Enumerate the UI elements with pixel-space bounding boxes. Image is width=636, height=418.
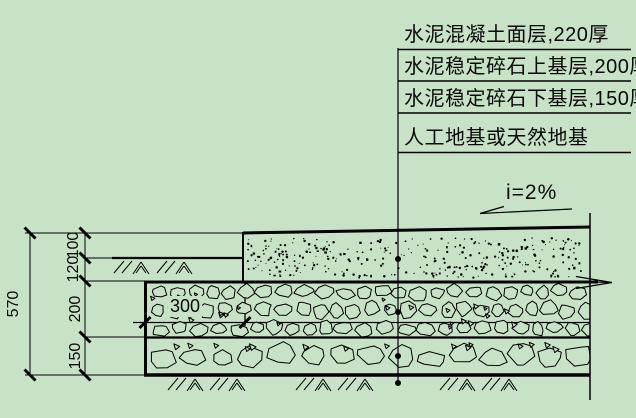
callout-upper-base-layer: 水泥稳定碎石上基层,200厚 xyxy=(404,55,636,79)
dimension-150: 150 xyxy=(68,332,84,380)
crushed-stone-pattern xyxy=(151,283,600,368)
callout-surface-layer: 水泥混凝土面层,220厚 xyxy=(404,23,609,47)
dimension-200: 200 xyxy=(68,285,84,333)
pavement-cross-section-drawing: 水泥混凝土面层,220厚 水泥稳定碎石上基层,200厚 水泥稳定碎石下基层,15… xyxy=(0,0,636,418)
dimension-extension-lines xyxy=(25,233,243,375)
dimension-base-extension: 300 xyxy=(168,296,202,317)
slope-arrow xyxy=(480,207,572,214)
concrete-slab-outline xyxy=(243,227,590,281)
dimension-overall-570: 570 xyxy=(6,274,22,334)
slope-label: i=2% xyxy=(506,181,557,205)
concrete-stipple-pattern xyxy=(247,237,582,279)
callout-lower-base-layer: 水泥稳定碎石下基层,150厚 xyxy=(404,87,636,111)
callout-subgrade: 人工地基或天然地基 xyxy=(404,126,589,150)
